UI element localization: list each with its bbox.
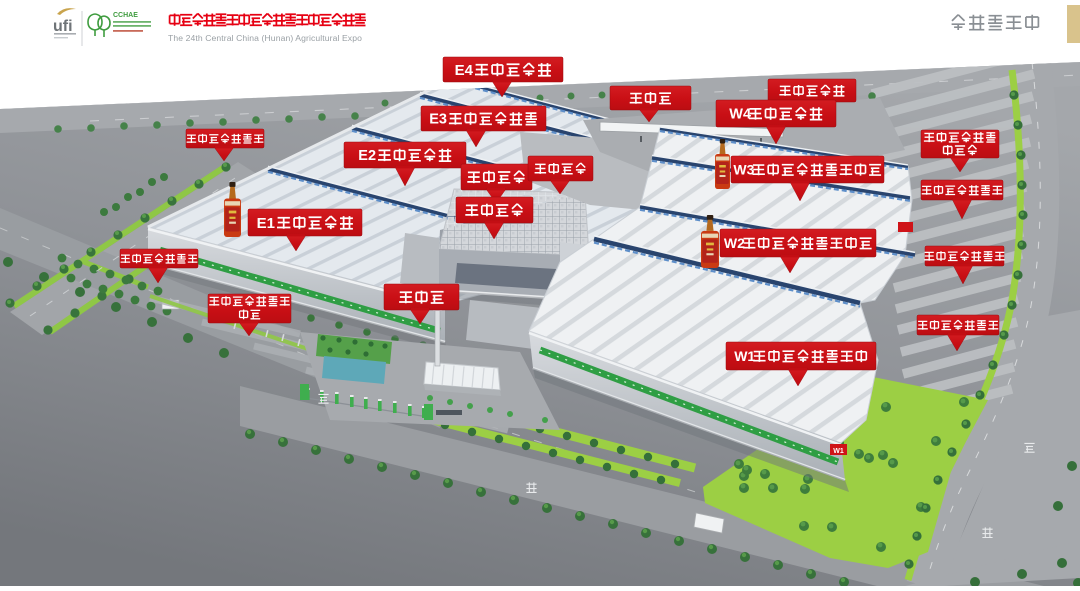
svg-text:E1: E1 (257, 215, 275, 232)
svg-text:W4: W4 (729, 107, 751, 123)
svg-text:W3: W3 (733, 161, 754, 177)
svg-text:The 24th Central China (Hunan): The 24th Central China (Hunan) Agricultu… (168, 33, 362, 43)
svg-text:W2: W2 (724, 235, 745, 251)
svg-text:E4: E4 (455, 62, 474, 79)
svg-text:W1: W1 (734, 348, 755, 364)
svg-text:CCHAE: CCHAE (113, 12, 138, 19)
svg-text:E2: E2 (358, 148, 376, 164)
svg-text:ufi: ufi (53, 18, 73, 35)
svg-text:W1: W1 (833, 448, 844, 455)
svg-text:E3: E3 (429, 112, 447, 128)
